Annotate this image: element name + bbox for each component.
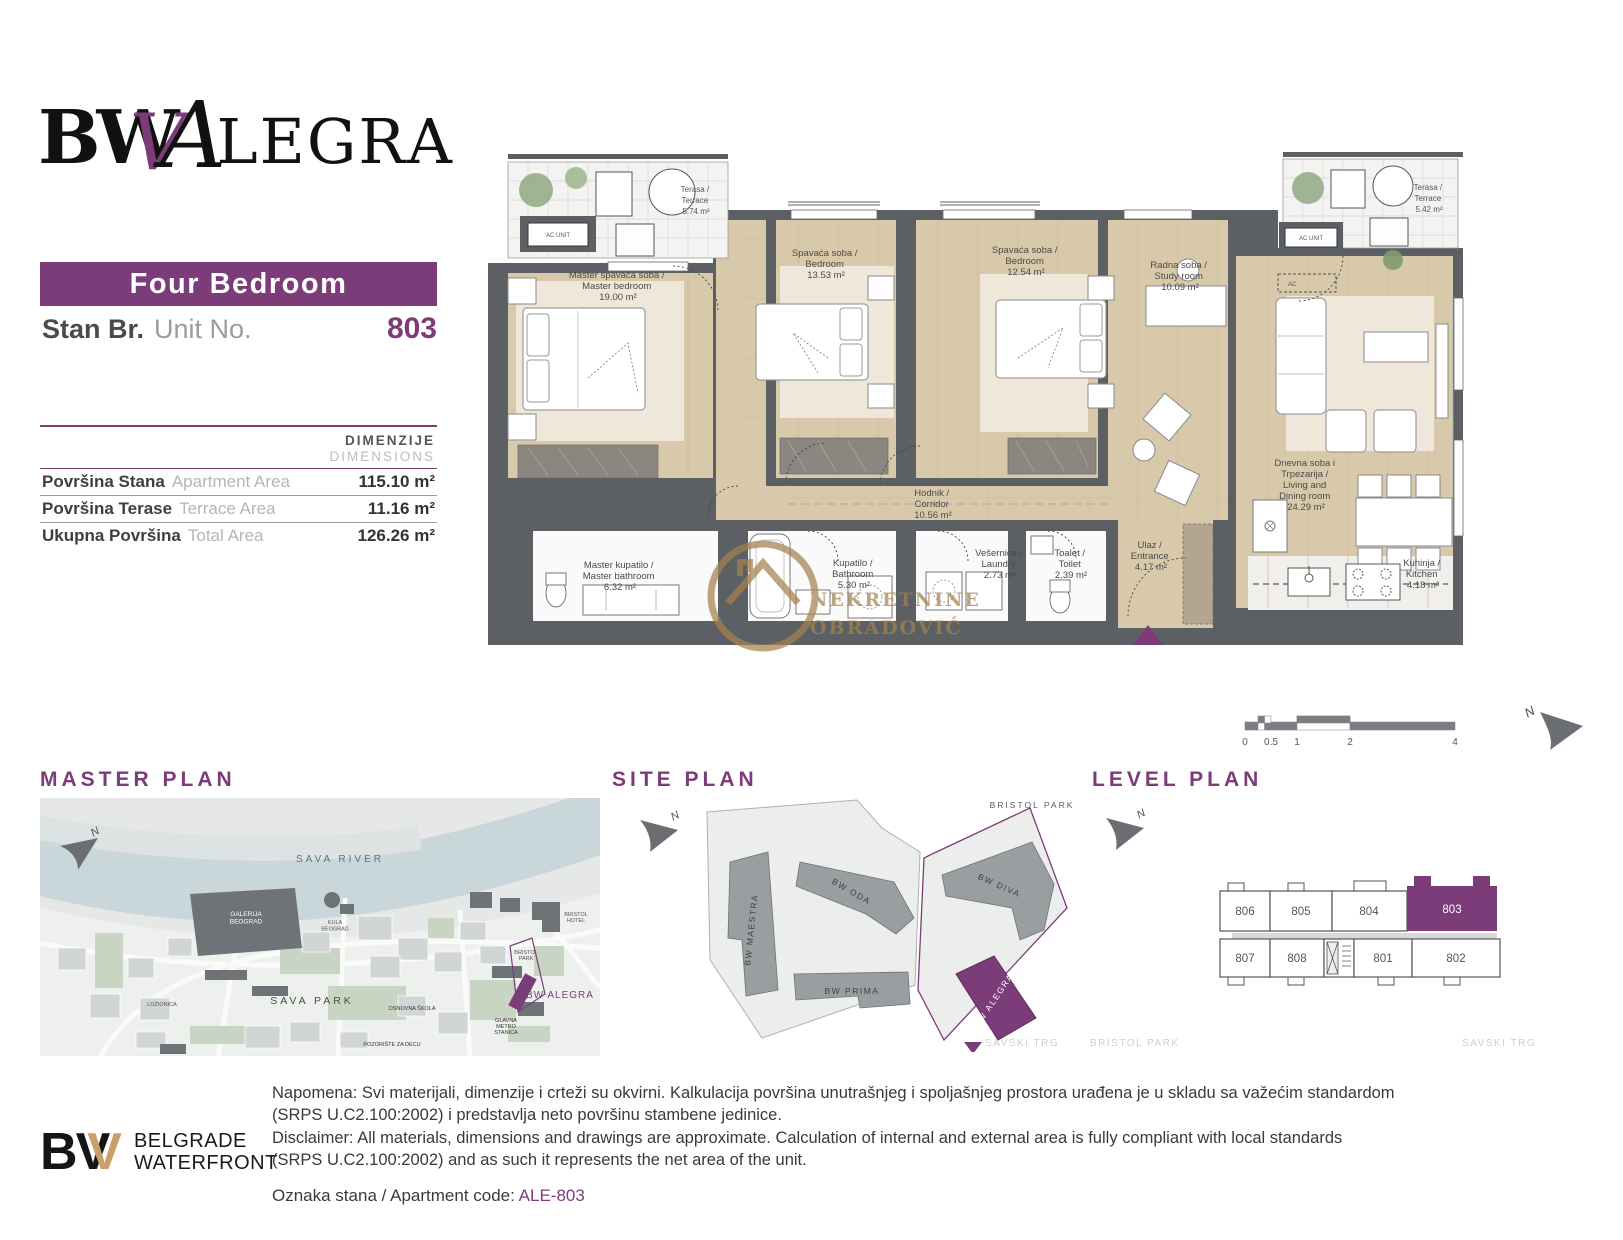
plant-icon (1383, 250, 1403, 270)
site-plan-map: BW MAESTRA BW ODA BW PRIMA BW DIVA BW AL… (612, 790, 1082, 1052)
dimensions-label: DIMENSIONS (40, 449, 435, 465)
master-bedroom-furniture (508, 278, 684, 441)
street-label: SAVSKI TRG (985, 1038, 1059, 1049)
svg-text:803: 803 (1442, 904, 1461, 916)
svg-text:Kupatilo / Bathroom: Kupatilo / Bathroom 5.30 m² (832, 558, 876, 591)
svg-text:AC: AC (1288, 282, 1297, 288)
svg-text:NEKRETNINE: NEKRETNINE (810, 589, 981, 611)
sink-icon (1031, 536, 1053, 554)
table-row-terrace-area: Površina Terase Terrace Area 11.16 m² (40, 495, 437, 522)
stool-icon (1370, 218, 1408, 246)
svg-text:SAVA RIVER: SAVA RIVER (296, 854, 384, 865)
unit-803-notch (1414, 876, 1431, 886)
svg-text:801: 801 (1373, 953, 1392, 965)
nightstand-icon (1088, 276, 1114, 300)
svg-text:Toalet / Toilet: Toalet / Toilet 2.39 m² (1054, 548, 1087, 581)
scale-bar: 0 0.5 1 2 4 N (1235, 698, 1615, 762)
svg-text:Terasa / Terrace: Terasa / Terrace 5.74 m² (681, 185, 712, 216)
svg-text:N: N (1135, 807, 1148, 821)
dining-table-icon (1356, 498, 1452, 546)
row-value: 115.10 m² (358, 472, 435, 492)
nightstand-icon (508, 278, 536, 304)
svg-text:4: 4 (1452, 737, 1458, 748)
svg-text:0: 0 (1242, 737, 1248, 748)
brand-line2: WATERFRONT (134, 1152, 278, 1174)
north-arrow-icon: N (640, 809, 682, 852)
terrace-right: Terasa / Terrace 5.42 m² AC UNIT (1279, 152, 1463, 252)
nightstand-icon (1088, 384, 1114, 408)
row-label-en: Terrace Area (179, 499, 275, 519)
brand-line1: BELGRADE (134, 1130, 278, 1152)
dining-chair-icon (1358, 475, 1382, 497)
nightstand-icon (868, 276, 894, 300)
level-plan-title: LEVEL PLAN (1092, 768, 1262, 792)
bedroom3-furniture (980, 274, 1114, 432)
bw-logo-gold-v: V (87, 1122, 122, 1182)
strip-shadow (1232, 933, 1497, 939)
terrace-left: Terasa / Terrace 5.74 m² AC UNIT (508, 154, 728, 258)
svg-text:BW PRIMA: BW PRIMA (825, 986, 880, 996)
dimensions-table: DIMENZIJE DIMENSIONS Površina Stana Apar… (40, 425, 437, 549)
svg-text:Terasa / Terrace: Terasa / Terrace 5.42 m² (1414, 183, 1445, 214)
row-label-sr: Ukupna Površina (42, 526, 181, 546)
armchair-icon (1326, 410, 1366, 452)
site-plan-title: SITE PLAN (612, 768, 758, 792)
stool-icon (616, 224, 654, 256)
row-value: 126.26 m² (358, 526, 436, 546)
dining-chair-icon (1416, 475, 1440, 497)
unit-no-label: Unit No. (154, 314, 252, 345)
table-row-total-area: Ukupna Površina Total Area 126.26 m² (40, 522, 437, 549)
svg-text:GALERIJABEOGRAD: GALERIJABEOGRAD (230, 911, 263, 926)
disclaimer-line2: (SRPS U.C2.100:2002) and as such it repr… (272, 1149, 1602, 1171)
svg-text:805: 805 (1291, 906, 1310, 918)
master-plan-title: MASTER PLAN (40, 768, 236, 792)
svg-text:BW ALEGRA: BW ALEGRA (526, 990, 594, 1001)
brochure-page: BWVALEGRA Four Bedroom Stan Br. Unit No.… (0, 0, 1623, 1240)
alegra-marker-arrow (964, 1042, 982, 1052)
dimensions-header: DIMENZIJE DIMENSIONS (40, 427, 437, 468)
street-label: BRISTOL PARK (1090, 1038, 1180, 1049)
svg-text:BRISTOLHOTEL: BRISTOLHOTEL (564, 912, 587, 924)
unit-number-line: Stan Br. Unit No. 803 (42, 312, 437, 346)
row-label-sr: Površina Stana (42, 472, 165, 492)
nightstand-icon (868, 384, 894, 408)
row-label-sr: Površina Terase (42, 499, 172, 519)
unit-type-label: Four Bedroom (130, 268, 348, 301)
disclaimer-text: Napomena: Svi materijali, dimenzije i cr… (272, 1082, 1602, 1171)
svg-text:OBRADOVIĆ: OBRADOVIĆ (810, 616, 963, 639)
svg-text:N: N (1522, 703, 1538, 721)
svg-text:0.5: 0.5 (1264, 737, 1278, 748)
napomena-line2: (SRPS U.C2.100:2002) i predstavlja neto … (272, 1104, 1602, 1126)
svg-text:BRISTOL PARK: BRISTOL PARK (990, 800, 1075, 810)
bw-logo-b: B (40, 1122, 76, 1182)
svg-text:N: N (669, 809, 682, 823)
unit-803-notch (1473, 876, 1490, 886)
apartment-code-label: Oznaka stana / Apartment code: (272, 1186, 515, 1205)
sofa-icon (1276, 298, 1326, 414)
svg-text:SAVA PARK: SAVA PARK (270, 995, 354, 1007)
unit-type-banner: Four Bedroom (40, 262, 437, 306)
svg-text:804: 804 (1359, 906, 1379, 918)
table-row-apartment-area: Površina Stana Apartment Area 115.10 m² (40, 468, 437, 495)
stan-br-label: Stan Br. (42, 314, 144, 345)
svg-text:AC UNIT: AC UNIT (1299, 236, 1323, 242)
coffee-table-icon (1364, 332, 1428, 362)
row-value: 11.16 m² (368, 499, 435, 519)
svg-text:AC UNIT: AC UNIT (546, 233, 570, 239)
street-label: SAVSKI TRG (1462, 1038, 1536, 1049)
nightstand-icon (508, 414, 536, 440)
chair-icon (596, 172, 632, 216)
belgrade-waterfront-logo: BVV BELGRADE WATERFRONT (40, 1122, 278, 1182)
dimenzije-label: DIMENZIJE (40, 433, 435, 449)
brand-name: BELGRADE WATERFRONT (134, 1130, 278, 1174)
floor-plan: Terasa / Terrace 5.74 m² AC UNIT Terasa … (488, 148, 1473, 668)
armchair-icon (1374, 410, 1416, 452)
north-arrow-icon: N (1106, 807, 1148, 850)
plant-icon (519, 173, 553, 207)
row-label-en: Total Area (188, 526, 264, 546)
svg-text:807: 807 (1235, 953, 1254, 965)
svg-text:GLAVNAMETROSTANICA: GLAVNAMETROSTANICA (494, 1018, 518, 1036)
bottom-notches (1228, 977, 1460, 985)
north-arrow-icon: N (1522, 703, 1583, 750)
top-notches (1228, 881, 1386, 891)
svg-text:Hodnik / Corridor: Hodnik / Corridor 10.56 m² (914, 488, 952, 521)
unit-number: 803 (387, 312, 437, 346)
side-table-icon (1133, 439, 1155, 461)
chair-icon (1331, 170, 1365, 208)
bw-alegra-logo: BWVALEGRA (38, 78, 454, 185)
dining-chair-icon (1387, 475, 1411, 497)
svg-text:OSNOVNA ŠKOLA: OSNOVNA ŠKOLA (388, 1005, 435, 1012)
plant-icon (1292, 172, 1324, 204)
apartment-code-value: ALE-803 (519, 1186, 585, 1205)
svg-text:LOŽIONICA: LOŽIONICA (147, 1000, 177, 1008)
svg-text:808: 808 (1287, 953, 1306, 965)
napomena-line1: Napomena: Svi materijali, dimenzije i cr… (272, 1082, 1602, 1104)
tv-unit-icon (1436, 324, 1448, 418)
apartment-code-line: Oznaka stana / Apartment code: ALE-803 (272, 1186, 585, 1206)
table-icon (1373, 166, 1413, 206)
svg-text:802: 802 (1446, 953, 1465, 965)
logo-script-a: A (160, 82, 226, 189)
svg-text:2: 2 (1347, 737, 1353, 748)
svg-text:POZORIŠTE ZA DECU: POZORIŠTE ZA DECU (363, 1041, 420, 1048)
plant-icon (565, 167, 587, 189)
svg-text:806: 806 (1235, 906, 1254, 918)
level-plan-map: N (1092, 796, 1572, 996)
disclaimer-line1: Disclaimer: All materials, dimensions an… (272, 1127, 1602, 1149)
master-plan-map: N SAVA RIVER GALERIJABEOGRAD KULABEOGRAD… (40, 798, 600, 1056)
row-label-en: Apartment Area (172, 472, 290, 492)
logo-legra: LEGRA (216, 105, 453, 178)
svg-text:1: 1 (1294, 737, 1300, 748)
svg-text:Kuhinja / Kitchen: Kuhinja / Kitchen 4.18 m² (1403, 558, 1443, 591)
